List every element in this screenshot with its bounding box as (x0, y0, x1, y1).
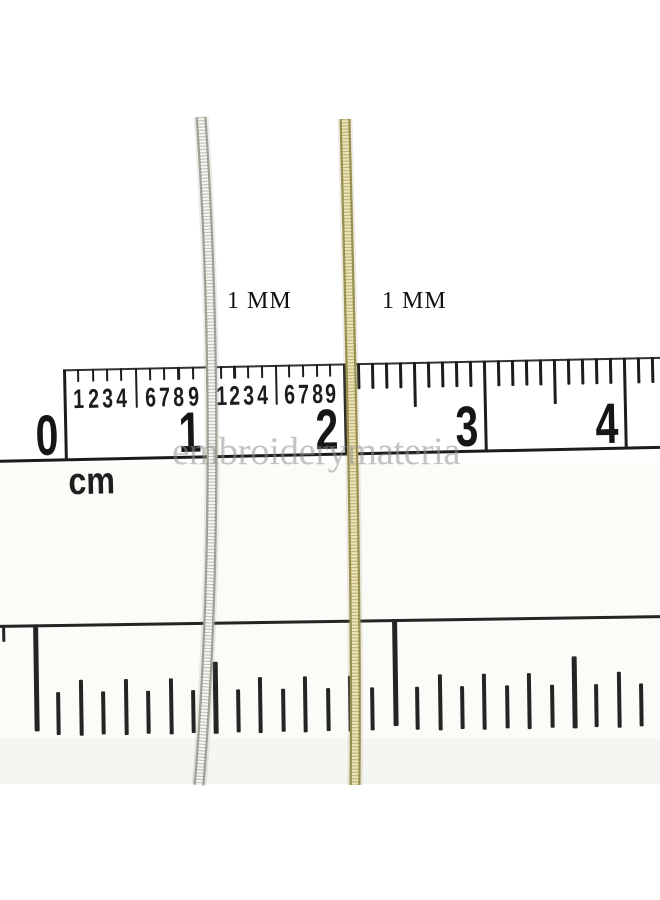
thread2-size-label: 1 MM (382, 288, 447, 315)
watermark-text: embroiderymateria (172, 429, 460, 474)
thread1-size-label: 1 MM (227, 288, 292, 315)
product-photo: 012341234678912346789cm embroiderymateri… (0, 0, 660, 900)
